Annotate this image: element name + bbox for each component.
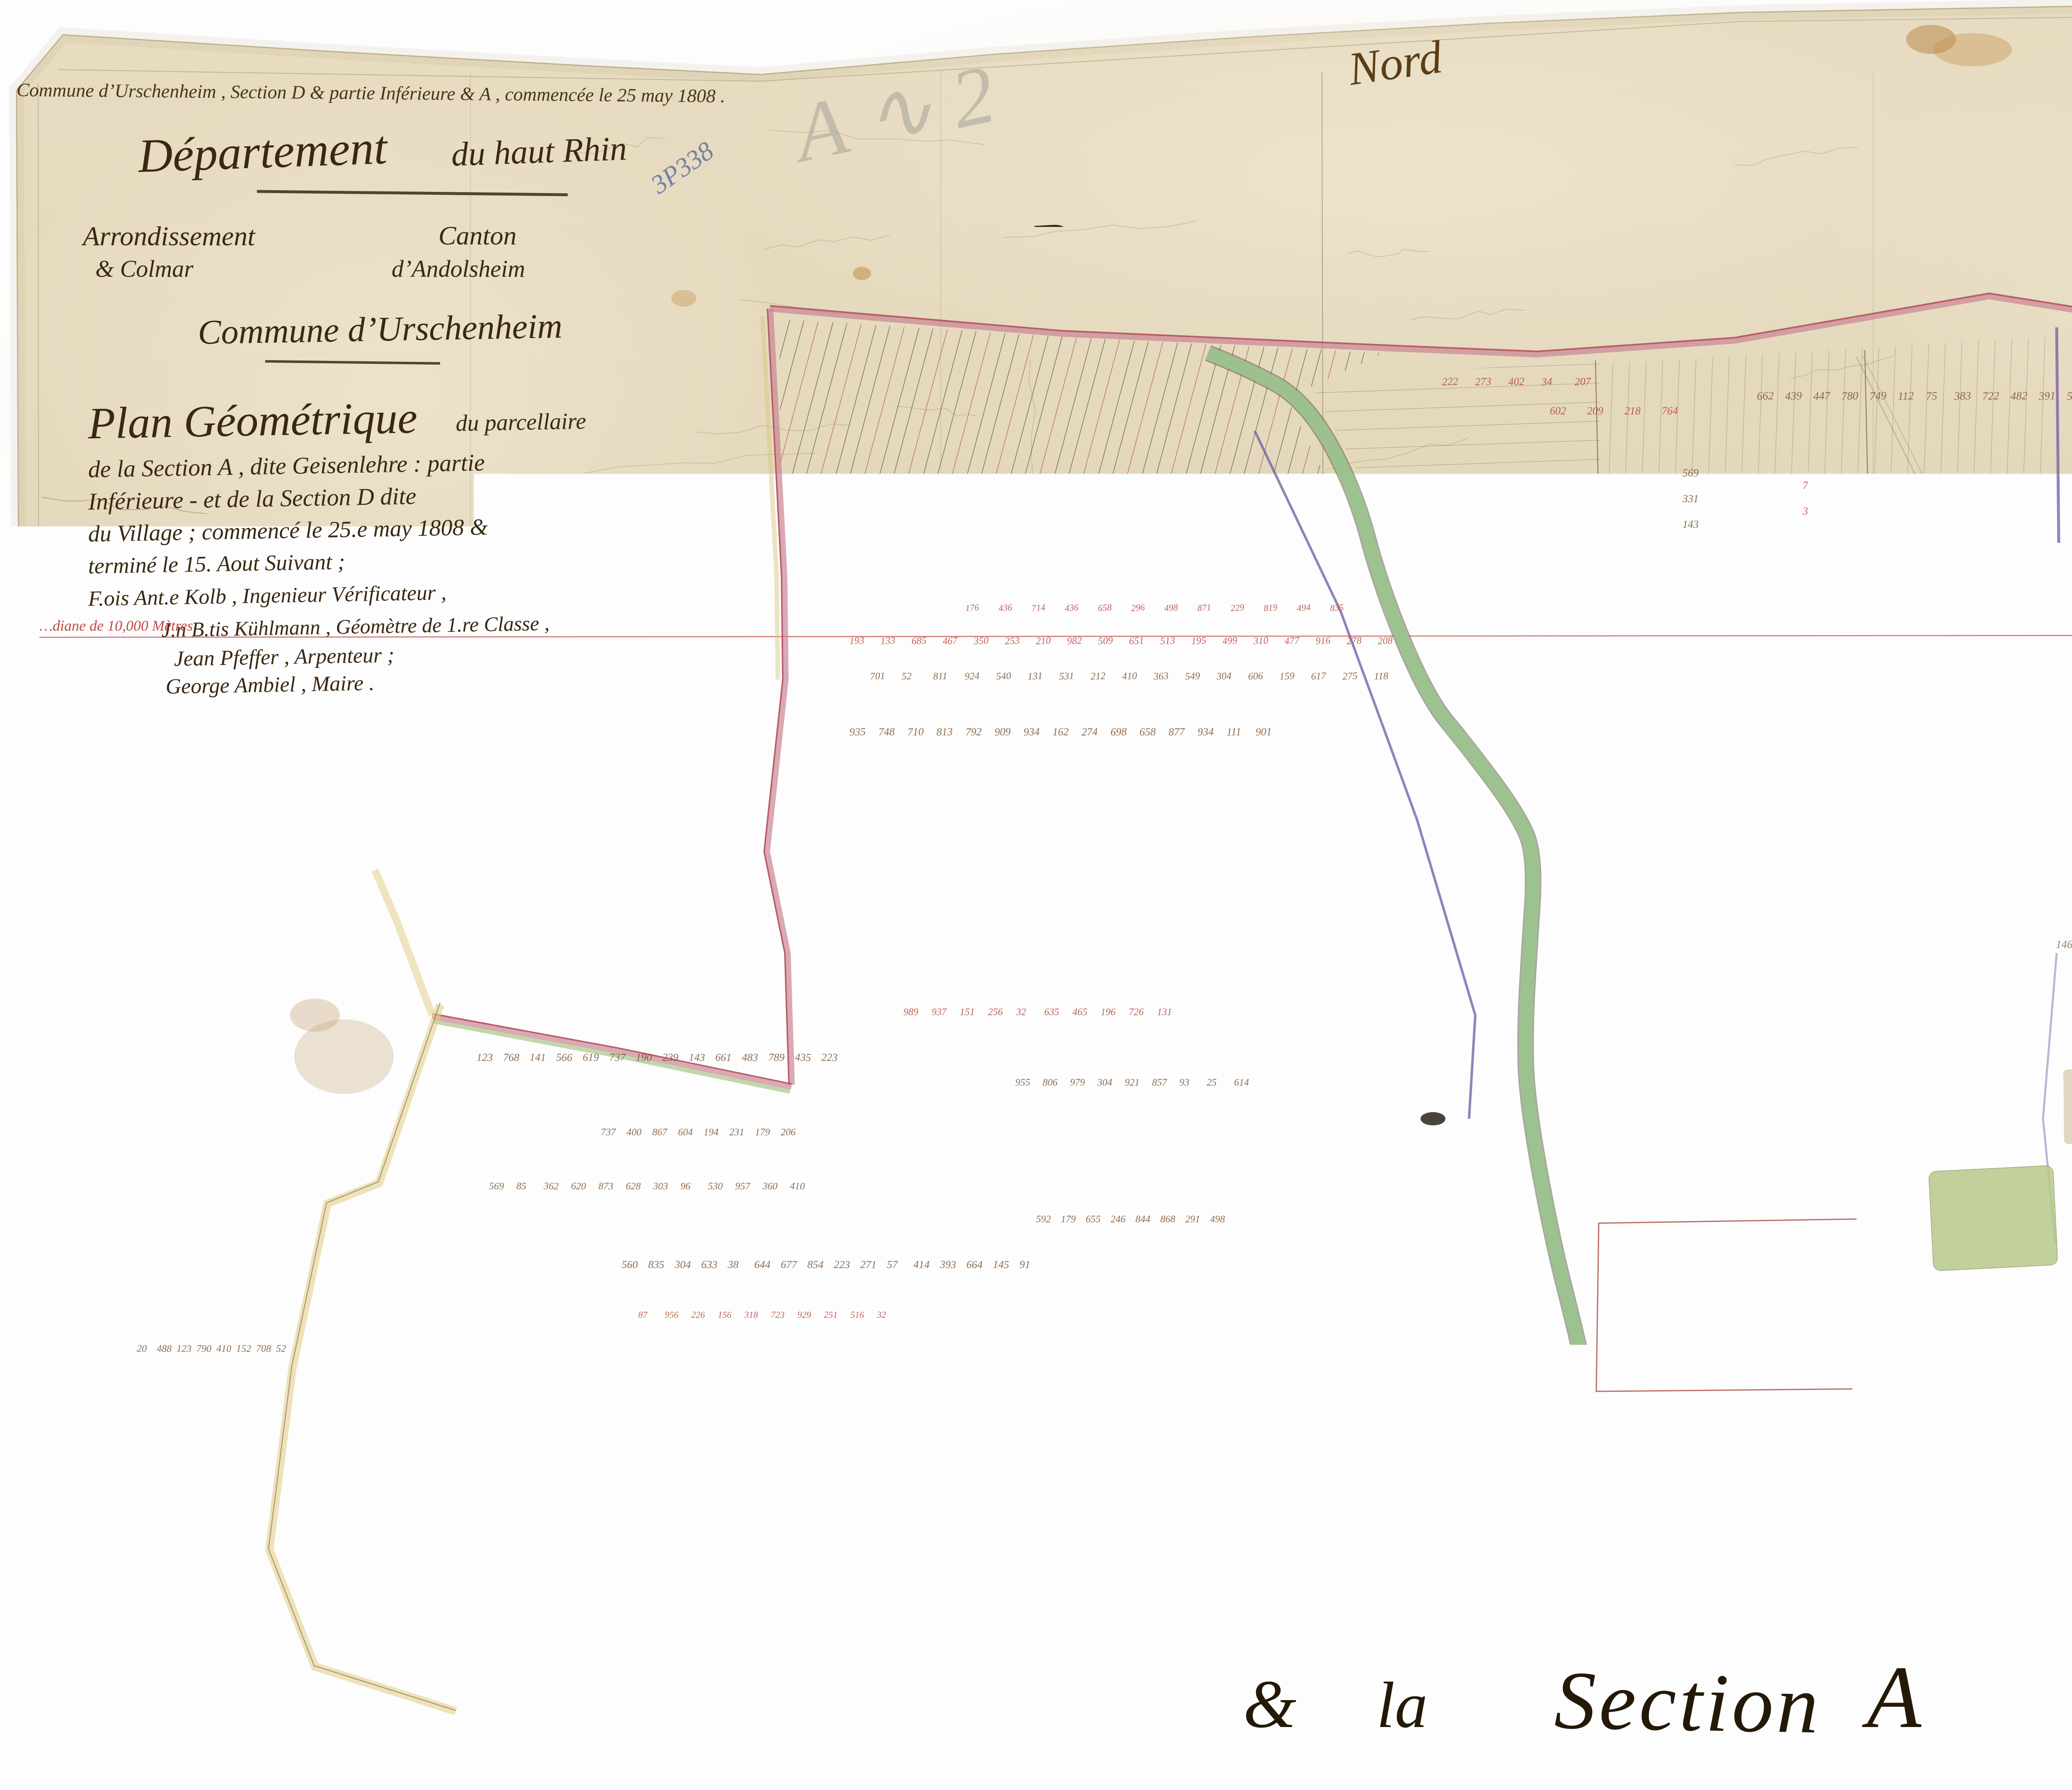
- svg-text:339: 339: [1802, 608, 1819, 620]
- svg-text:360: 360: [762, 1181, 777, 1192]
- svg-text:979: 979: [1684, 1188, 1698, 1198]
- svg-text:159: 159: [1989, 1280, 2003, 1291]
- svg-text:304: 304: [674, 1258, 691, 1271]
- svg-text:648: 648: [1620, 1135, 1634, 1146]
- svg-text:620: 620: [571, 1181, 586, 1192]
- svg-text:664: 664: [966, 1258, 983, 1271]
- svg-text:907: 907: [1989, 1355, 2003, 1365]
- svg-text:579: 579: [1595, 1205, 1608, 1215]
- svg-text:28: 28: [1989, 1330, 1998, 1340]
- svg-text:112: 112: [1898, 389, 1914, 402]
- svg-text:123: 123: [177, 1343, 191, 1355]
- svg-text:63: 63: [779, 1061, 797, 1081]
- svg-text:91: 91: [1504, 1153, 1513, 1163]
- svg-text:739: 739: [1989, 1305, 2003, 1316]
- svg-text:447: 447: [1813, 389, 1831, 402]
- svg-text:393: 393: [939, 1258, 956, 1271]
- svg-text:821: 821: [1740, 1283, 1757, 1295]
- svg-text:513: 513: [1160, 635, 1175, 647]
- svg-text:197: 197: [1595, 1135, 1609, 1146]
- svg-text:934: 934: [1024, 726, 1040, 738]
- svg-text:674: 674: [1674, 678, 1690, 690]
- svg-text:123: 123: [477, 1051, 493, 1064]
- svg-text:161: 161: [1736, 1153, 1749, 1163]
- svg-text:920: 920: [1629, 765, 1645, 777]
- svg-text:275: 275: [1342, 671, 1358, 682]
- svg-text:102: 102: [1736, 1222, 1749, 1233]
- svg-text:749: 749: [1869, 389, 1887, 402]
- svg-text:zu 6: zu 6: [1440, 1367, 1509, 1413]
- svg-text:979: 979: [1070, 1077, 1085, 1088]
- svg-text:261: 261: [1834, 1283, 1850, 1295]
- svg-text:32: 32: [876, 1309, 886, 1320]
- svg-text:738: 738: [1518, 1170, 1531, 1180]
- svg-text:12417. 0: 12417. 0: [1889, 779, 1954, 802]
- svg-text:854: 854: [807, 1258, 824, 1271]
- svg-text:617: 617: [1311, 671, 1326, 682]
- svg-text:929: 929: [797, 1309, 811, 1320]
- svg-text:934: 934: [1198, 726, 1214, 738]
- svg-text:257: 257: [1757, 637, 1774, 649]
- svg-text:457: 457: [1832, 895, 1848, 907]
- svg-text:56: 56: [1283, 721, 1299, 739]
- svg-text:737: 737: [601, 1127, 616, 1138]
- svg-text:434: 434: [1787, 1153, 1801, 1163]
- svg-text:65: 65: [733, 664, 753, 686]
- svg-text:Jean Pfeffer , Arpenteur ;: Jean Pfeffer , Arpenteur ;: [174, 643, 395, 671]
- svg-text:161: 161: [1948, 834, 1964, 846]
- svg-text:210: 210: [1036, 635, 1051, 647]
- svg-text:804: 804: [1964, 1318, 1979, 1328]
- svg-text:639: 639: [1678, 840, 1694, 852]
- svg-text:A: A: [1862, 1647, 1922, 1746]
- svg-text:1: 1: [929, 1441, 957, 1496]
- svg-text:229: 229: [1678, 917, 1694, 929]
- svg-text:976: 976: [1707, 678, 1723, 690]
- svg-text:22: 22: [1646, 1135, 1655, 1146]
- svg-text:860: 860: [1647, 1408, 1662, 1420]
- svg-text:325: 325: [1671, 1170, 1685, 1180]
- svg-text:298: 298: [1898, 1318, 1913, 1328]
- svg-text:912: 912: [1684, 1222, 1698, 1233]
- svg-text:360: 360: [1658, 1153, 1672, 1163]
- svg-text:419: 419: [1658, 1188, 1672, 1198]
- svg-text:502: 502: [1832, 972, 1848, 984]
- svg-text:216: 216: [1492, 1170, 1506, 1180]
- svg-text:414: 414: [913, 1258, 930, 1271]
- svg-text:222: 222: [1442, 375, 1458, 388]
- svg-text:764: 764: [1662, 405, 1678, 417]
- svg-text:209: 209: [1931, 1318, 1946, 1328]
- svg-text:819: 819: [1264, 602, 1278, 613]
- svg-text:963: 963: [1641, 678, 1657, 690]
- svg-text:662: 662: [1757, 389, 1774, 402]
- svg-text:790: 790: [196, 1343, 211, 1355]
- svg-text:509: 509: [1098, 635, 1113, 647]
- svg-text:458: 458: [1813, 1188, 1826, 1198]
- svg-text:536: 536: [1518, 1205, 1531, 1215]
- svg-text:63: 63: [1927, 605, 1938, 617]
- svg-text:622: 622: [1803, 1283, 1819, 1295]
- svg-text:685: 685: [911, 635, 927, 647]
- svg-text:350: 350: [1812, 1153, 1826, 1163]
- svg-text:57: 57: [887, 1258, 898, 1270]
- svg-text:661: 661: [715, 1051, 732, 1064]
- svg-text:517: 517: [1629, 637, 1645, 649]
- svg-text:465: 465: [1072, 1007, 1087, 1018]
- svg-text:Canal: Canal: [1511, 1006, 1532, 1045]
- svg-text:369: 369: [1658, 1222, 1672, 1233]
- svg-text:108: 108: [1910, 1254, 1927, 1266]
- svg-text:362: 362: [543, 1181, 559, 1192]
- svg-text:141: 141: [530, 1051, 546, 1064]
- svg-text:71: 71: [1695, 282, 1713, 302]
- svg-text:du haut Rhin: du haut Rhin: [450, 129, 627, 173]
- svg-text:& Colmar: & Colmar: [95, 255, 194, 282]
- svg-text:85: 85: [516, 1181, 526, 1192]
- svg-text:313: 313: [1831, 947, 1848, 959]
- svg-text:655: 655: [1086, 1214, 1101, 1225]
- svg-text:979: 979: [1730, 1349, 1747, 1362]
- svg-text:156: 156: [718, 1309, 731, 1320]
- svg-text:159: 159: [1787, 1222, 1801, 1233]
- svg-text:849: 849: [1772, 1283, 1788, 1295]
- svg-text:696: 696: [1774, 1205, 1788, 1215]
- svg-text:708: 708: [1581, 1188, 1595, 1198]
- svg-text:436: 436: [998, 602, 1013, 613]
- svg-text:133: 133: [880, 635, 896, 647]
- svg-text:372: 372: [1989, 1181, 2003, 1191]
- svg-text:253: 253: [1005, 635, 1020, 647]
- svg-text:573: 573: [1757, 714, 1773, 726]
- svg-text:86: 86: [1297, 1215, 1313, 1232]
- svg-text:875: 875: [1761, 1153, 1775, 1163]
- svg-text:957: 957: [735, 1181, 750, 1192]
- svg-text:935: 935: [850, 726, 866, 738]
- svg-text:873: 873: [598, 1181, 613, 1192]
- svg-text:439: 439: [1492, 1205, 1506, 1215]
- svg-text:206: 206: [781, 1127, 796, 1138]
- svg-text:74: 74: [1710, 1153, 1719, 1163]
- svg-text:780: 780: [1841, 389, 1859, 402]
- svg-text:813: 813: [937, 726, 953, 738]
- svg-text:380: 380: [1628, 714, 1645, 726]
- svg-text:818: 818: [1620, 1205, 1634, 1215]
- svg-text:477: 477: [1284, 635, 1300, 647]
- svg-text:229: 229: [1230, 602, 1245, 613]
- svg-text:916: 916: [1315, 635, 1331, 647]
- svg-text:735: 735: [1989, 1380, 2003, 1390]
- svg-text:884: 884: [1629, 663, 1645, 675]
- svg-text:881: 881: [1678, 866, 1694, 878]
- svg-text:39: 39: [1802, 1173, 1813, 1183]
- svg-text:436: 436: [1065, 602, 1079, 613]
- svg-text:658: 658: [1140, 726, 1156, 738]
- svg-text:866: 866: [1757, 663, 1773, 675]
- svg-text:212: 212: [1090, 671, 1106, 682]
- svg-text:531: 531: [1059, 671, 1074, 682]
- svg-text:811: 811: [933, 671, 947, 682]
- svg-text:195: 195: [1191, 635, 1206, 647]
- svg-text:209: 209: [1587, 405, 1603, 417]
- svg-text:67: 67: [752, 281, 772, 302]
- svg-text:880: 880: [1774, 1135, 1788, 1146]
- svg-text:828: 828: [1697, 1205, 1711, 1215]
- svg-text:124: 124: [1710, 1222, 1723, 1233]
- svg-text:d’Andolsheim: d’Andolsheim: [392, 255, 525, 282]
- svg-text:710: 710: [908, 726, 924, 738]
- svg-text:226: 226: [691, 1309, 705, 1320]
- svg-text:223: 223: [821, 1051, 838, 1064]
- svg-text:877: 877: [1169, 726, 1186, 738]
- svg-text:612: 612: [1530, 1188, 1544, 1198]
- svg-text:143: 143: [689, 1051, 705, 1064]
- svg-text:173: 173: [1757, 740, 1773, 752]
- svg-text:601: 601: [1709, 1408, 1724, 1420]
- svg-text:740: 740: [2022, 1430, 2036, 1440]
- svg-text:371: 371: [1748, 1170, 1762, 1180]
- svg-text:439: 439: [1785, 389, 1802, 402]
- svg-text:602: 602: [1550, 405, 1566, 417]
- svg-text:246: 246: [1111, 1214, 1126, 1225]
- svg-text:239: 239: [662, 1051, 679, 1064]
- svg-text:610: 610: [1646, 1205, 1660, 1215]
- svg-text:terminé le 15. Aout Suivant ;: terminé le 15. Aout Suivant ;: [88, 549, 345, 578]
- svg-text:483: 483: [742, 1051, 758, 1064]
- svg-text:317: 317: [1947, 885, 1964, 897]
- svg-text:571: 571: [1569, 1205, 1583, 1215]
- svg-text:118: 118: [1374, 671, 1388, 682]
- svg-text:96: 96: [680, 1181, 690, 1192]
- svg-text:179: 179: [755, 1127, 770, 1138]
- svg-text:256: 256: [988, 1007, 1003, 1018]
- svg-text:Village: Village: [1931, 1234, 2044, 1282]
- svg-text:596: 596: [1620, 1170, 1634, 1180]
- svg-text:410: 410: [216, 1343, 231, 1355]
- svg-text:66: 66: [730, 455, 750, 477]
- svg-text:723: 723: [771, 1309, 784, 1320]
- svg-text:499: 499: [1222, 635, 1237, 647]
- svg-text:844: 844: [1135, 1214, 1150, 1225]
- svg-text:Arrondissement: Arrondissement: [81, 221, 256, 252]
- svg-text:Enge: Enge: [1382, 515, 1422, 539]
- svg-text:145: 145: [993, 1258, 1009, 1271]
- svg-text:274: 274: [1082, 726, 1098, 738]
- svg-text:20: 20: [137, 1343, 147, 1354]
- svg-text:494: 494: [1297, 602, 1311, 613]
- svg-text:25: 25: [1207, 1077, 1217, 1088]
- svg-text:278: 278: [1346, 635, 1362, 647]
- svg-text:942: 942: [1504, 1222, 1518, 1233]
- svg-text:208: 208: [1948, 808, 1964, 820]
- svg-text:748: 748: [1633, 1222, 1646, 1233]
- svg-text:788: 788: [1800, 1205, 1814, 1215]
- svg-text:549: 549: [1185, 671, 1200, 682]
- svg-text:547: 547: [1672, 1135, 1686, 1146]
- svg-text:608: 608: [1646, 1170, 1660, 1180]
- svg-text:75: 75: [1926, 389, 1937, 402]
- svg-text:577: 577: [1832, 921, 1848, 933]
- svg-text:184: 184: [1556, 1188, 1569, 1198]
- svg-text:855: 855: [1699, 1349, 1716, 1362]
- svg-text:151: 151: [1633, 1153, 1646, 1163]
- svg-text:839: 839: [1890, 1173, 1905, 1183]
- svg-text:76: 76: [1803, 479, 1813, 491]
- svg-text:832: 832: [1774, 1170, 1788, 1180]
- svg-text:982: 982: [1067, 635, 1082, 647]
- svg-text:566: 566: [556, 1051, 573, 1064]
- svg-text:69: 69: [1475, 309, 1497, 332]
- svg-text:Partie: Partie: [628, 1563, 806, 1649]
- svg-text:642: 642: [2022, 1405, 2036, 1415]
- svg-text:660: 660: [1629, 740, 1645, 752]
- svg-text:Commune d’Urschenheim: Commune d’Urschenheim: [198, 307, 563, 352]
- svg-text:475: 475: [2022, 1305, 2036, 1316]
- svg-text:880: 880: [1684, 1153, 1698, 1163]
- svg-text:500: 500: [1569, 1170, 1583, 1180]
- svg-text:522: 522: [1678, 968, 1694, 980]
- svg-text:410: 410: [790, 1181, 805, 1192]
- svg-text:16: 16: [1749, 1135, 1758, 1146]
- svg-text:955: 955: [1015, 1077, 1030, 1088]
- svg-text:503: 503: [1927, 707, 1943, 719]
- svg-text:Prés: Prés: [1278, 1192, 1312, 1212]
- svg-text:808: 808: [1761, 1188, 1775, 1198]
- svg-text:371: 371: [1761, 1222, 1775, 1233]
- svg-text:207: 207: [1574, 375, 1591, 388]
- svg-text:223: 223: [834, 1258, 850, 1271]
- svg-text:932: 932: [1569, 1135, 1583, 1146]
- svg-text:698: 698: [1111, 726, 1127, 738]
- svg-text:271: 271: [860, 1258, 877, 1271]
- svg-text:937: 937: [932, 1007, 947, 1018]
- svg-text:956: 956: [665, 1309, 678, 1320]
- svg-text:951: 951: [1792, 1349, 1809, 1362]
- svg-text:628: 628: [626, 1181, 641, 1192]
- svg-text:208: 208: [1377, 635, 1393, 647]
- svg-text:867: 867: [652, 1127, 668, 1138]
- svg-text:231: 231: [729, 1127, 744, 1138]
- svg-text:835: 835: [648, 1258, 665, 1271]
- svg-text:540: 540: [996, 671, 1011, 682]
- svg-text:614: 614: [1234, 1077, 1249, 1088]
- svg-text:225: 225: [1761, 1349, 1778, 1362]
- svg-text:94: 94: [1608, 678, 1619, 690]
- svg-text:152: 152: [236, 1343, 251, 1355]
- svg-text:920-22 83-84: 920-22 83-84: [936, 1050, 1036, 1073]
- svg-text:748: 748: [879, 726, 895, 738]
- svg-text:421: 421: [1989, 1206, 2003, 1216]
- svg-text:629: 629: [1556, 1153, 1569, 1163]
- svg-text:657: 657: [1697, 1170, 1711, 1180]
- svg-text:Canton: Canton: [438, 221, 516, 250]
- svg-text:9: 9: [1723, 694, 1760, 766]
- svg-text:318: 318: [744, 1309, 758, 1320]
- svg-text:765: 765: [1948, 860, 1964, 872]
- svg-text:1: 1: [763, 1497, 792, 1554]
- svg-text:zu 5: zu 5: [1991, 1461, 2053, 1502]
- svg-text:909: 909: [995, 726, 1011, 738]
- svg-text:Département: Département: [136, 121, 389, 182]
- svg-text:726: 726: [1129, 1007, 1144, 1018]
- svg-text:190: 190: [636, 1051, 652, 1064]
- svg-text:Ban: Ban: [1027, 203, 1191, 285]
- svg-text:291: 291: [1185, 1214, 1200, 1225]
- svg-text:George Ambiel , Maire .: George Ambiel , Maire .: [165, 671, 374, 699]
- svg-text:569: 569: [489, 1181, 504, 1192]
- svg-text:482: 482: [2010, 389, 2028, 402]
- svg-text:522: 522: [1757, 688, 1773, 700]
- svg-text:587: 587: [1607, 1222, 1621, 1233]
- svg-text:280: 280: [1672, 1205, 1685, 1215]
- svg-text:530: 530: [708, 1181, 723, 1192]
- svg-text:57: 57: [249, 1529, 268, 1550]
- svg-text:61: 61: [419, 978, 437, 999]
- svg-text:310: 310: [1253, 635, 1268, 647]
- svg-text:64: 64: [746, 838, 764, 859]
- svg-text:58: 58: [274, 1347, 292, 1367]
- svg-text:304: 304: [1216, 671, 1232, 682]
- svg-text:273: 273: [1475, 375, 1491, 388]
- svg-text:651: 651: [1129, 635, 1144, 647]
- svg-text:488: 488: [157, 1343, 172, 1355]
- svg-text:683: 683: [1595, 1170, 1608, 1180]
- svg-text:179: 179: [1061, 1214, 1076, 1225]
- svg-text:728: 728: [1581, 1153, 1595, 1163]
- svg-text:Chemin de Colmar: Chemin de Colmar: [878, 1180, 980, 1196]
- svg-text:72: 72: [1973, 273, 1992, 295]
- svg-text:736: 736: [1682, 570, 1699, 582]
- svg-text:304: 304: [1097, 1077, 1112, 1088]
- svg-text:57: 57: [1310, 482, 1328, 501]
- svg-text:606: 606: [1248, 671, 1263, 682]
- svg-text:la: la: [1377, 1669, 1428, 1742]
- svg-text:391: 391: [2038, 389, 2056, 402]
- svg-text:877: 877: [1530, 1222, 1544, 1233]
- svg-text:383: 383: [1953, 389, 1971, 402]
- svg-text:…diane de 10,000 Mètres: …diane de 10,000 Mètres: [39, 617, 193, 634]
- svg-text:du parcellaire: du parcellaire: [455, 409, 586, 436]
- svg-text:282: 282: [1927, 579, 1943, 591]
- svg-text:34: 34: [1541, 375, 1552, 388]
- svg-text:363: 363: [1153, 671, 1169, 682]
- svg-text:Section: Section: [1554, 1655, 1822, 1751]
- svg-text:768: 768: [503, 1051, 520, 1064]
- svg-text:868: 868: [1160, 1214, 1175, 1225]
- svg-text:943: 943: [1832, 844, 1848, 856]
- svg-text:677: 677: [1832, 1173, 1847, 1183]
- svg-text:806: 806: [1043, 1077, 1058, 1088]
- svg-text:Inférieure - et de la Section: Inférieure - et de la Section D dite: [87, 482, 416, 515]
- svg-text:906: 906: [1749, 1205, 1762, 1215]
- svg-text:&: &: [1243, 1666, 1296, 1742]
- svg-text:747: 747: [1919, 1173, 1934, 1183]
- svg-text:677: 677: [781, 1258, 798, 1271]
- svg-text:919: 919: [1678, 891, 1694, 903]
- svg-text:131: 131: [1157, 1007, 1172, 1018]
- svg-text:633: 633: [701, 1258, 718, 1271]
- svg-text:100: 100: [1948, 757, 1964, 769]
- svg-text:921: 921: [1125, 1077, 1140, 1088]
- svg-text:87: 87: [638, 1309, 648, 1320]
- svg-text:250: 250: [2025, 1365, 2059, 1391]
- svg-text:141: 141: [1989, 1430, 2003, 1440]
- svg-text:159: 159: [1279, 671, 1295, 682]
- svg-text:Plan Géométrique: Plan Géométrique: [87, 393, 418, 448]
- svg-text:871: 871: [1197, 602, 1212, 613]
- svg-text:604: 604: [678, 1127, 693, 1138]
- svg-text:642: 642: [1740, 1408, 1755, 1420]
